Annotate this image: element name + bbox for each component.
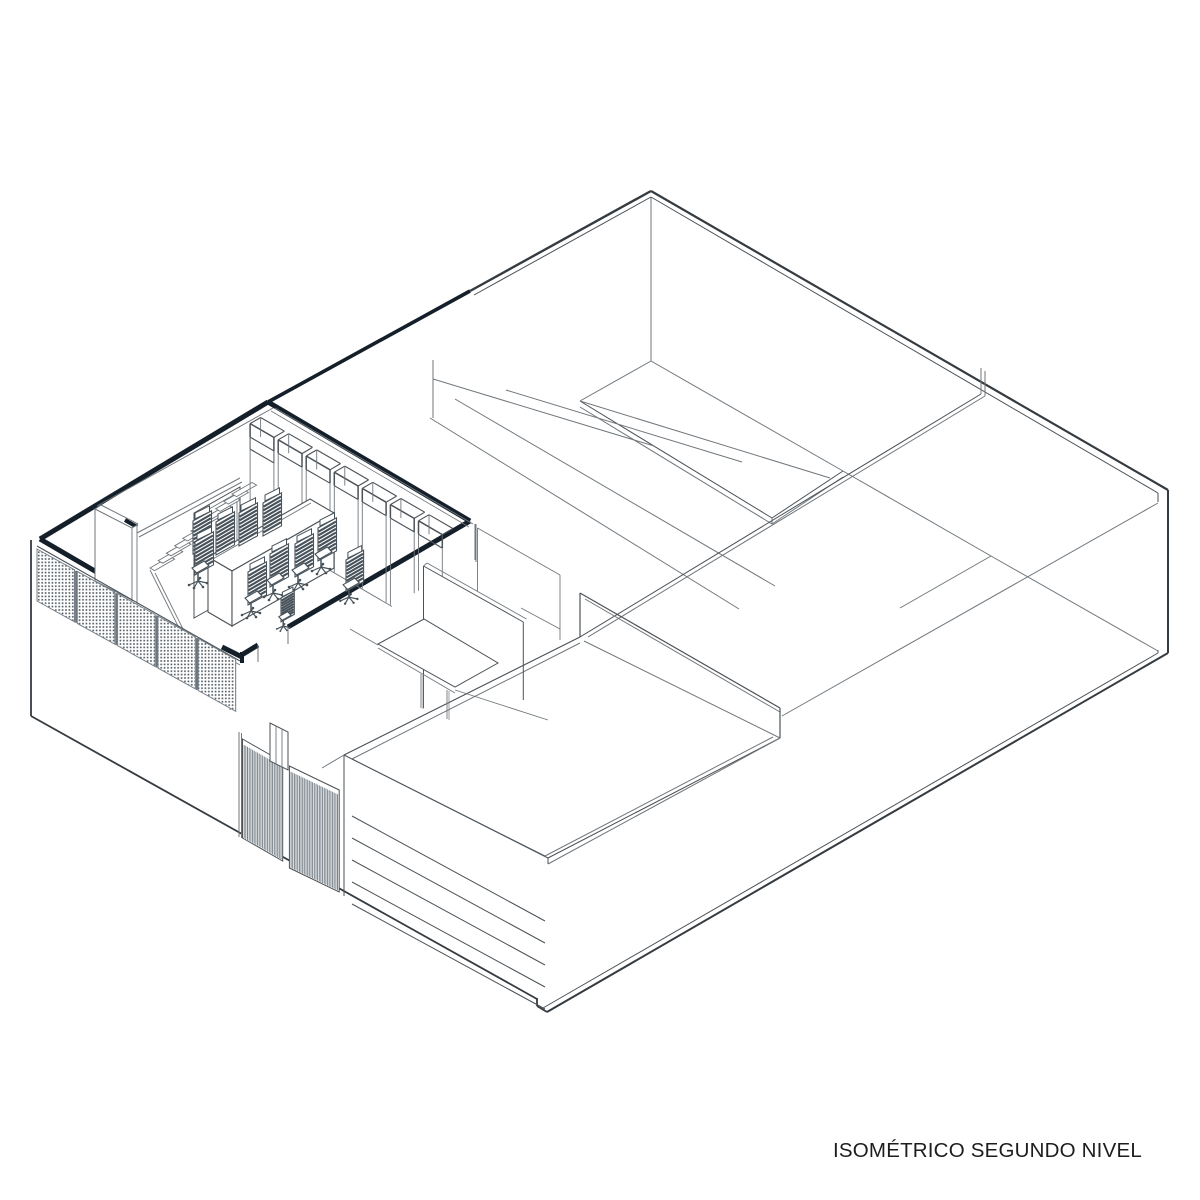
svg-text:ISOMÉTRICO SEGUNDO NIVEL: ISOMÉTRICO SEGUNDO NIVEL [833,1139,1142,1162]
